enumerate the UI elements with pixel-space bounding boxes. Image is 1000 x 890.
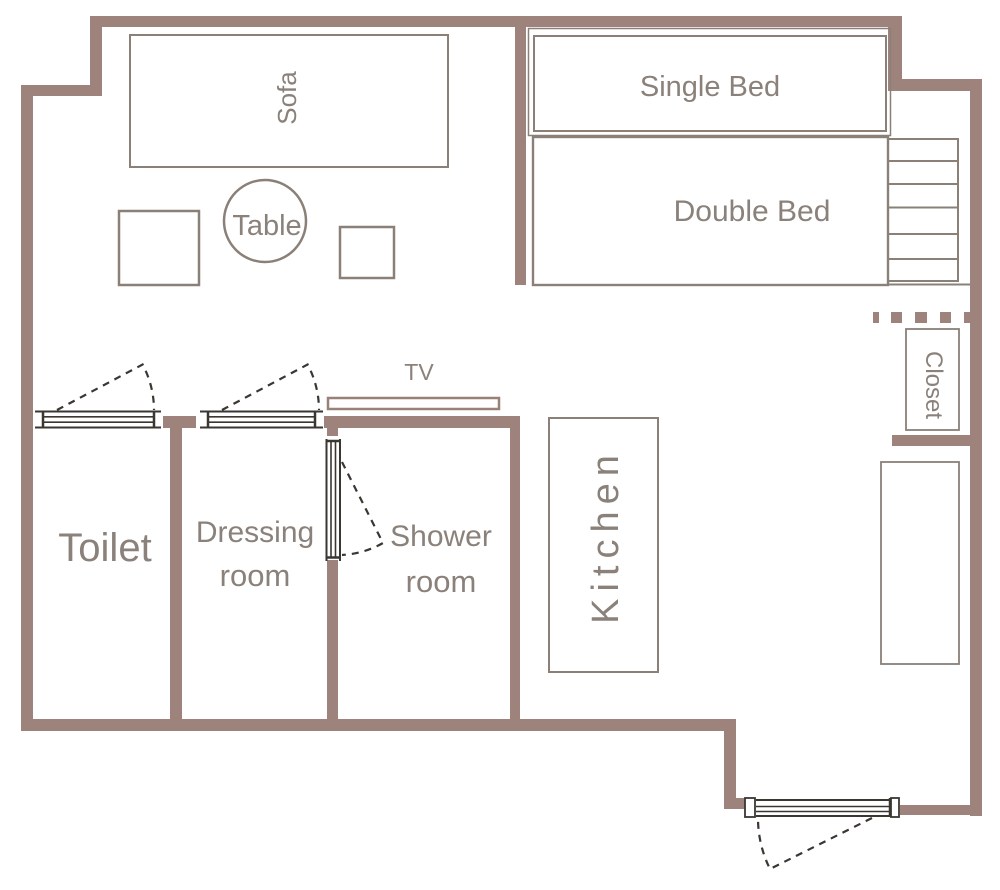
svg-text:Single Bed: Single Bed xyxy=(640,71,780,103)
svg-text:Closet: Closet xyxy=(920,351,947,419)
svg-text:Sofa: Sofa xyxy=(272,71,302,125)
svg-text:Shower: Shower xyxy=(390,520,492,553)
svg-text:Double Bed: Double Bed xyxy=(674,195,831,228)
svg-text:Kitchen: Kitchen xyxy=(585,448,627,624)
svg-text:room: room xyxy=(220,558,291,593)
svg-text:Dressing: Dressing xyxy=(196,516,314,549)
svg-text:TV: TV xyxy=(404,359,434,385)
svg-text:room: room xyxy=(406,564,477,599)
svg-text:Table: Table xyxy=(232,210,301,242)
svg-text:Toilet: Toilet xyxy=(58,526,151,570)
